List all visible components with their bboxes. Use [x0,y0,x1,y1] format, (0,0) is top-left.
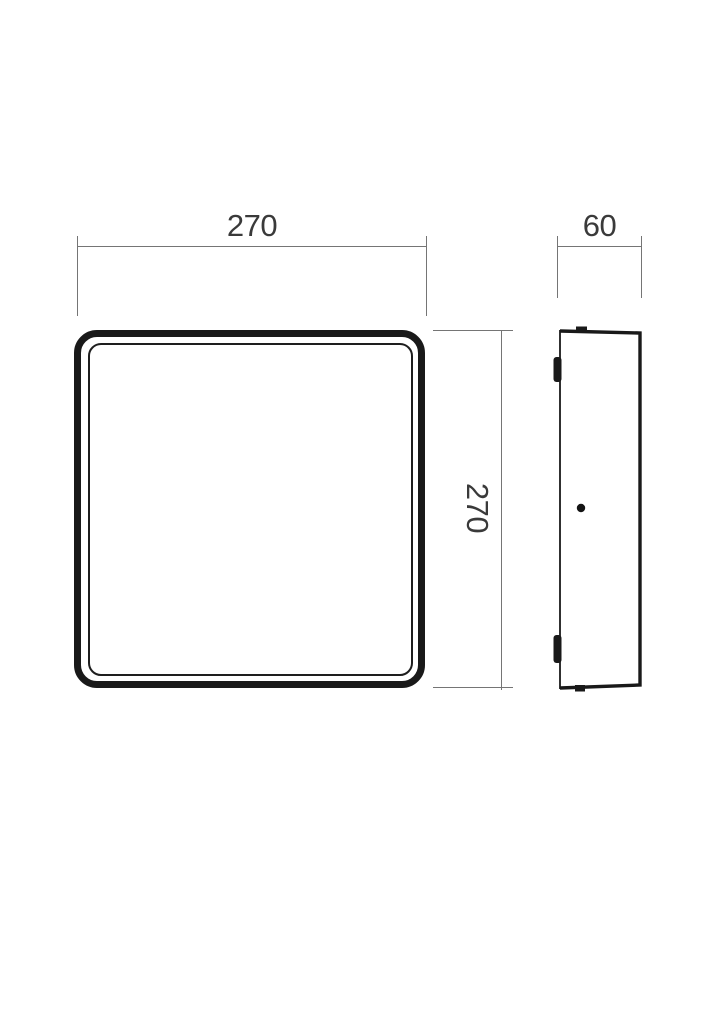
side-view-bottom-tab [575,685,585,692]
witness-line-front-width-left [77,236,78,316]
witness-line-front-height-top [433,330,513,331]
dimension-label-side-depth: 60 [557,211,642,241]
drawing-canvas: 270 60 270 [0,0,717,1024]
side-view-top-tab [576,327,587,333]
dimension-line-front-width [77,246,427,247]
screw-hole-dot [577,504,585,512]
witness-line-front-height-bottom [433,687,513,688]
witness-line-side-depth-right [641,236,642,298]
mounting-clip-top [554,357,562,382]
dimension-label-front-height: 270 [464,468,492,548]
side-view-outline [560,331,640,688]
dimension-line-front-height [501,330,502,690]
dimension-line-side-depth [557,246,642,247]
mounting-clip-bottom [554,635,562,663]
dimension-label-front-width: 270 [77,211,427,241]
witness-line-front-width-right [426,236,427,316]
front-view-inner-line [88,343,413,676]
witness-line-side-depth-left [557,236,558,298]
side-view [540,310,660,705]
